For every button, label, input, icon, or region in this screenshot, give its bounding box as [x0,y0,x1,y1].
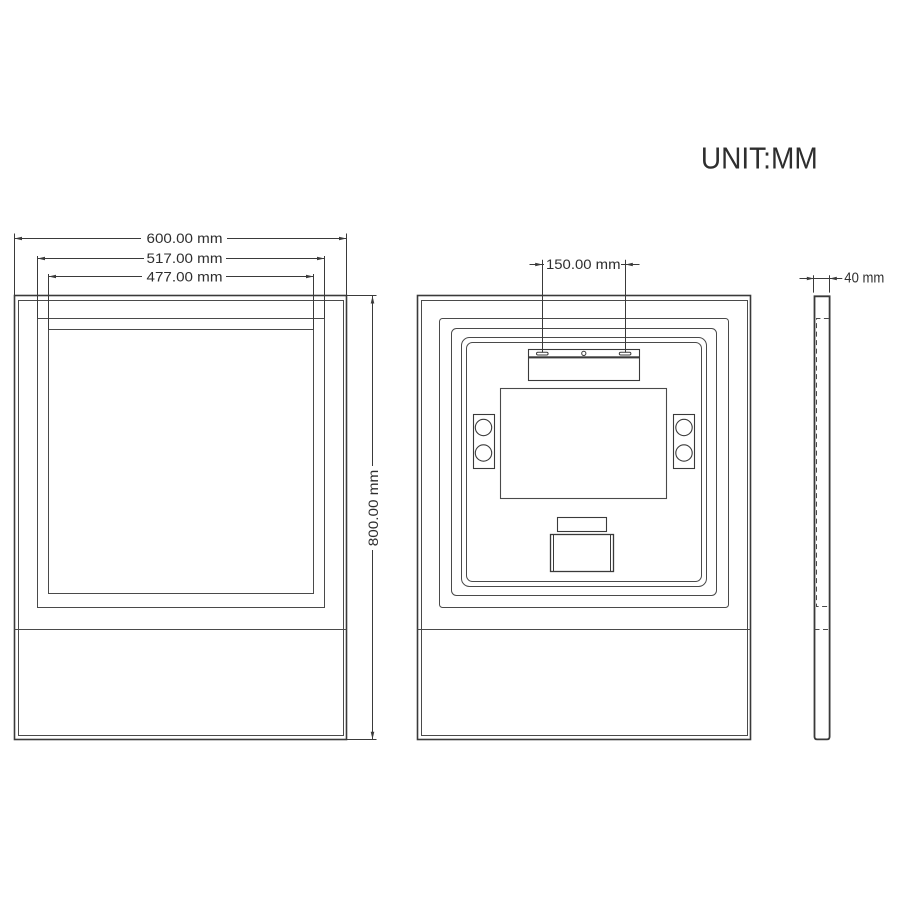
svg-text:600.00 mm: 600.00 mm [147,230,223,246]
svg-text:517.00 mm: 517.00 mm [147,250,223,266]
svg-text:UNIT:MM: UNIT:MM [701,141,818,175]
svg-text:477.00 mm: 477.00 mm [147,268,223,284]
svg-text:800.00 mm: 800.00 mm [365,470,381,547]
svg-text:40 mm: 40 mm [844,271,884,287]
svg-text:150.00 mm: 150.00 mm [546,256,621,272]
